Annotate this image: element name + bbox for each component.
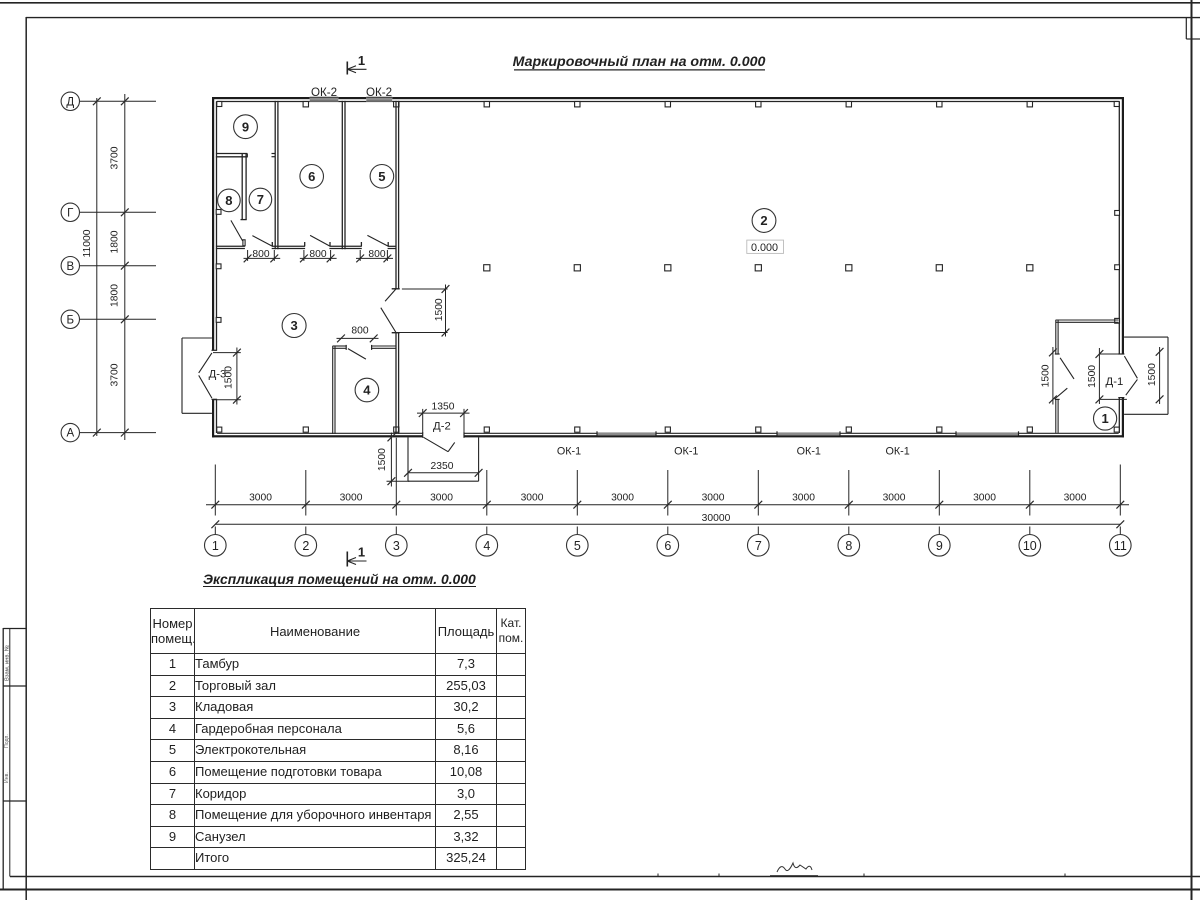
svg-text:5: 5 [378,169,385,184]
svg-text:3700: 3700 [110,363,121,386]
svg-text:0.000: 0.000 [751,242,778,254]
svg-text:1350: 1350 [432,401,455,412]
svg-text:3000: 3000 [521,493,544,504]
svg-text:30000: 30000 [702,513,731,524]
svg-text:8: 8 [225,193,232,208]
svg-text:ОК-1: ОК-1 [885,445,909,457]
svg-text:ОК-1: ОК-1 [797,445,821,457]
svg-text:7: 7 [755,539,762,553]
svg-text:Маркировочный план на отм. 0.0: Маркировочный план на отм. 0.000 [513,54,766,70]
svg-text:3000: 3000 [1064,493,1087,504]
svg-text:ОК-2: ОК-2 [311,86,337,99]
svg-text:4: 4 [363,383,371,398]
svg-text:11: 11 [1114,539,1127,553]
svg-text:7: 7 [257,192,264,207]
svg-text:2350: 2350 [431,461,454,472]
svg-text:3000: 3000 [883,493,906,504]
svg-text:800: 800 [351,325,368,336]
svg-text:Д-1: Д-1 [1106,376,1124,388]
svg-text:800: 800 [252,249,269,260]
svg-text:800: 800 [368,249,385,260]
svg-text:3700: 3700 [110,146,121,169]
svg-text:3000: 3000 [249,493,272,504]
svg-text:ОК-1: ОК-1 [557,445,581,457]
svg-text:3000: 3000 [973,493,996,504]
svg-text:Д: Д [66,96,74,108]
svg-text:10: 10 [1023,539,1037,553]
svg-text:9: 9 [936,539,943,553]
svg-text:1800: 1800 [110,284,121,307]
svg-text:1800: 1800 [110,230,121,253]
svg-text:4: 4 [483,539,490,553]
svg-text:1500: 1500 [1147,363,1158,386]
svg-text:1500: 1500 [1087,365,1098,388]
svg-text:6: 6 [308,169,315,184]
svg-text:Д-3: Д-3 [209,368,227,380]
svg-text:1: 1 [1101,411,1108,426]
svg-text:ОК-1: ОК-1 [674,445,698,457]
svg-text:3: 3 [290,318,297,333]
svg-text:1500: 1500 [434,298,445,321]
svg-text:8: 8 [845,539,852,553]
svg-text:Подп.: Подп. [4,734,10,748]
svg-text:ОК-2: ОК-2 [366,86,392,99]
svg-text:Д-2: Д-2 [433,420,451,432]
svg-text:Б: Б [67,314,75,326]
svg-text:В: В [66,261,74,273]
svg-text:3000: 3000 [792,493,815,504]
svg-text:2: 2 [760,213,767,228]
svg-text:6: 6 [664,539,671,553]
svg-text:Взам. инв. №: Взам. инв. № [4,645,10,681]
svg-text:1500: 1500 [1040,364,1051,387]
svg-text:9: 9 [242,119,249,134]
svg-text:3000: 3000 [340,493,363,504]
svg-text:800: 800 [309,249,326,260]
svg-text:1500: 1500 [377,448,388,471]
svg-text:2: 2 [302,539,309,553]
svg-text:3: 3 [393,539,400,553]
svg-text:3000: 3000 [430,493,453,504]
svg-text:3000: 3000 [702,493,725,504]
svg-text:3000: 3000 [611,493,634,504]
svg-text:1: 1 [212,539,219,553]
svg-text:5: 5 [574,539,581,553]
svg-text:Г: Г [67,207,74,219]
svg-text:1: 1 [358,53,365,68]
svg-text:1: 1 [358,545,365,560]
svg-text:А: А [66,428,74,440]
svg-text:11000: 11000 [82,229,93,257]
svg-text:Инв.: Инв. [4,772,10,783]
